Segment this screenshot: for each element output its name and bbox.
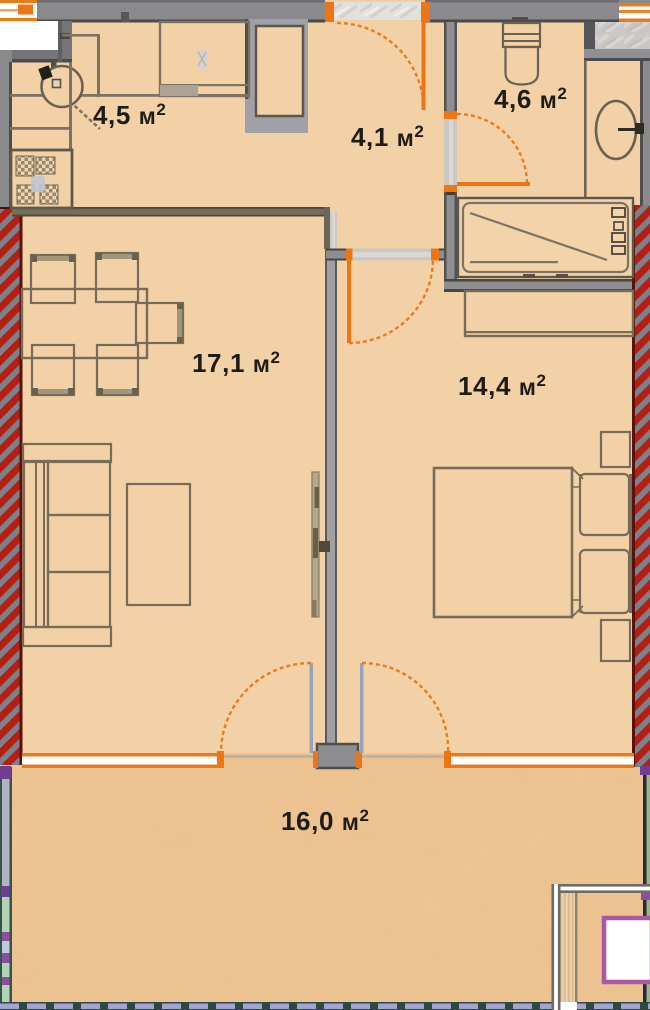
svg-text:4,5 м2: 4,5 м2 [93,100,166,130]
svg-text:17,1 м2: 17,1 м2 [192,348,281,378]
svg-text:4,1 м2: 4,1 м2 [351,122,424,152]
svg-text:14,4 м2: 14,4 м2 [458,371,547,401]
svg-text:4,6 м2: 4,6 м2 [494,84,567,114]
svg-text:16,0 м2: 16,0 м2 [281,806,370,836]
